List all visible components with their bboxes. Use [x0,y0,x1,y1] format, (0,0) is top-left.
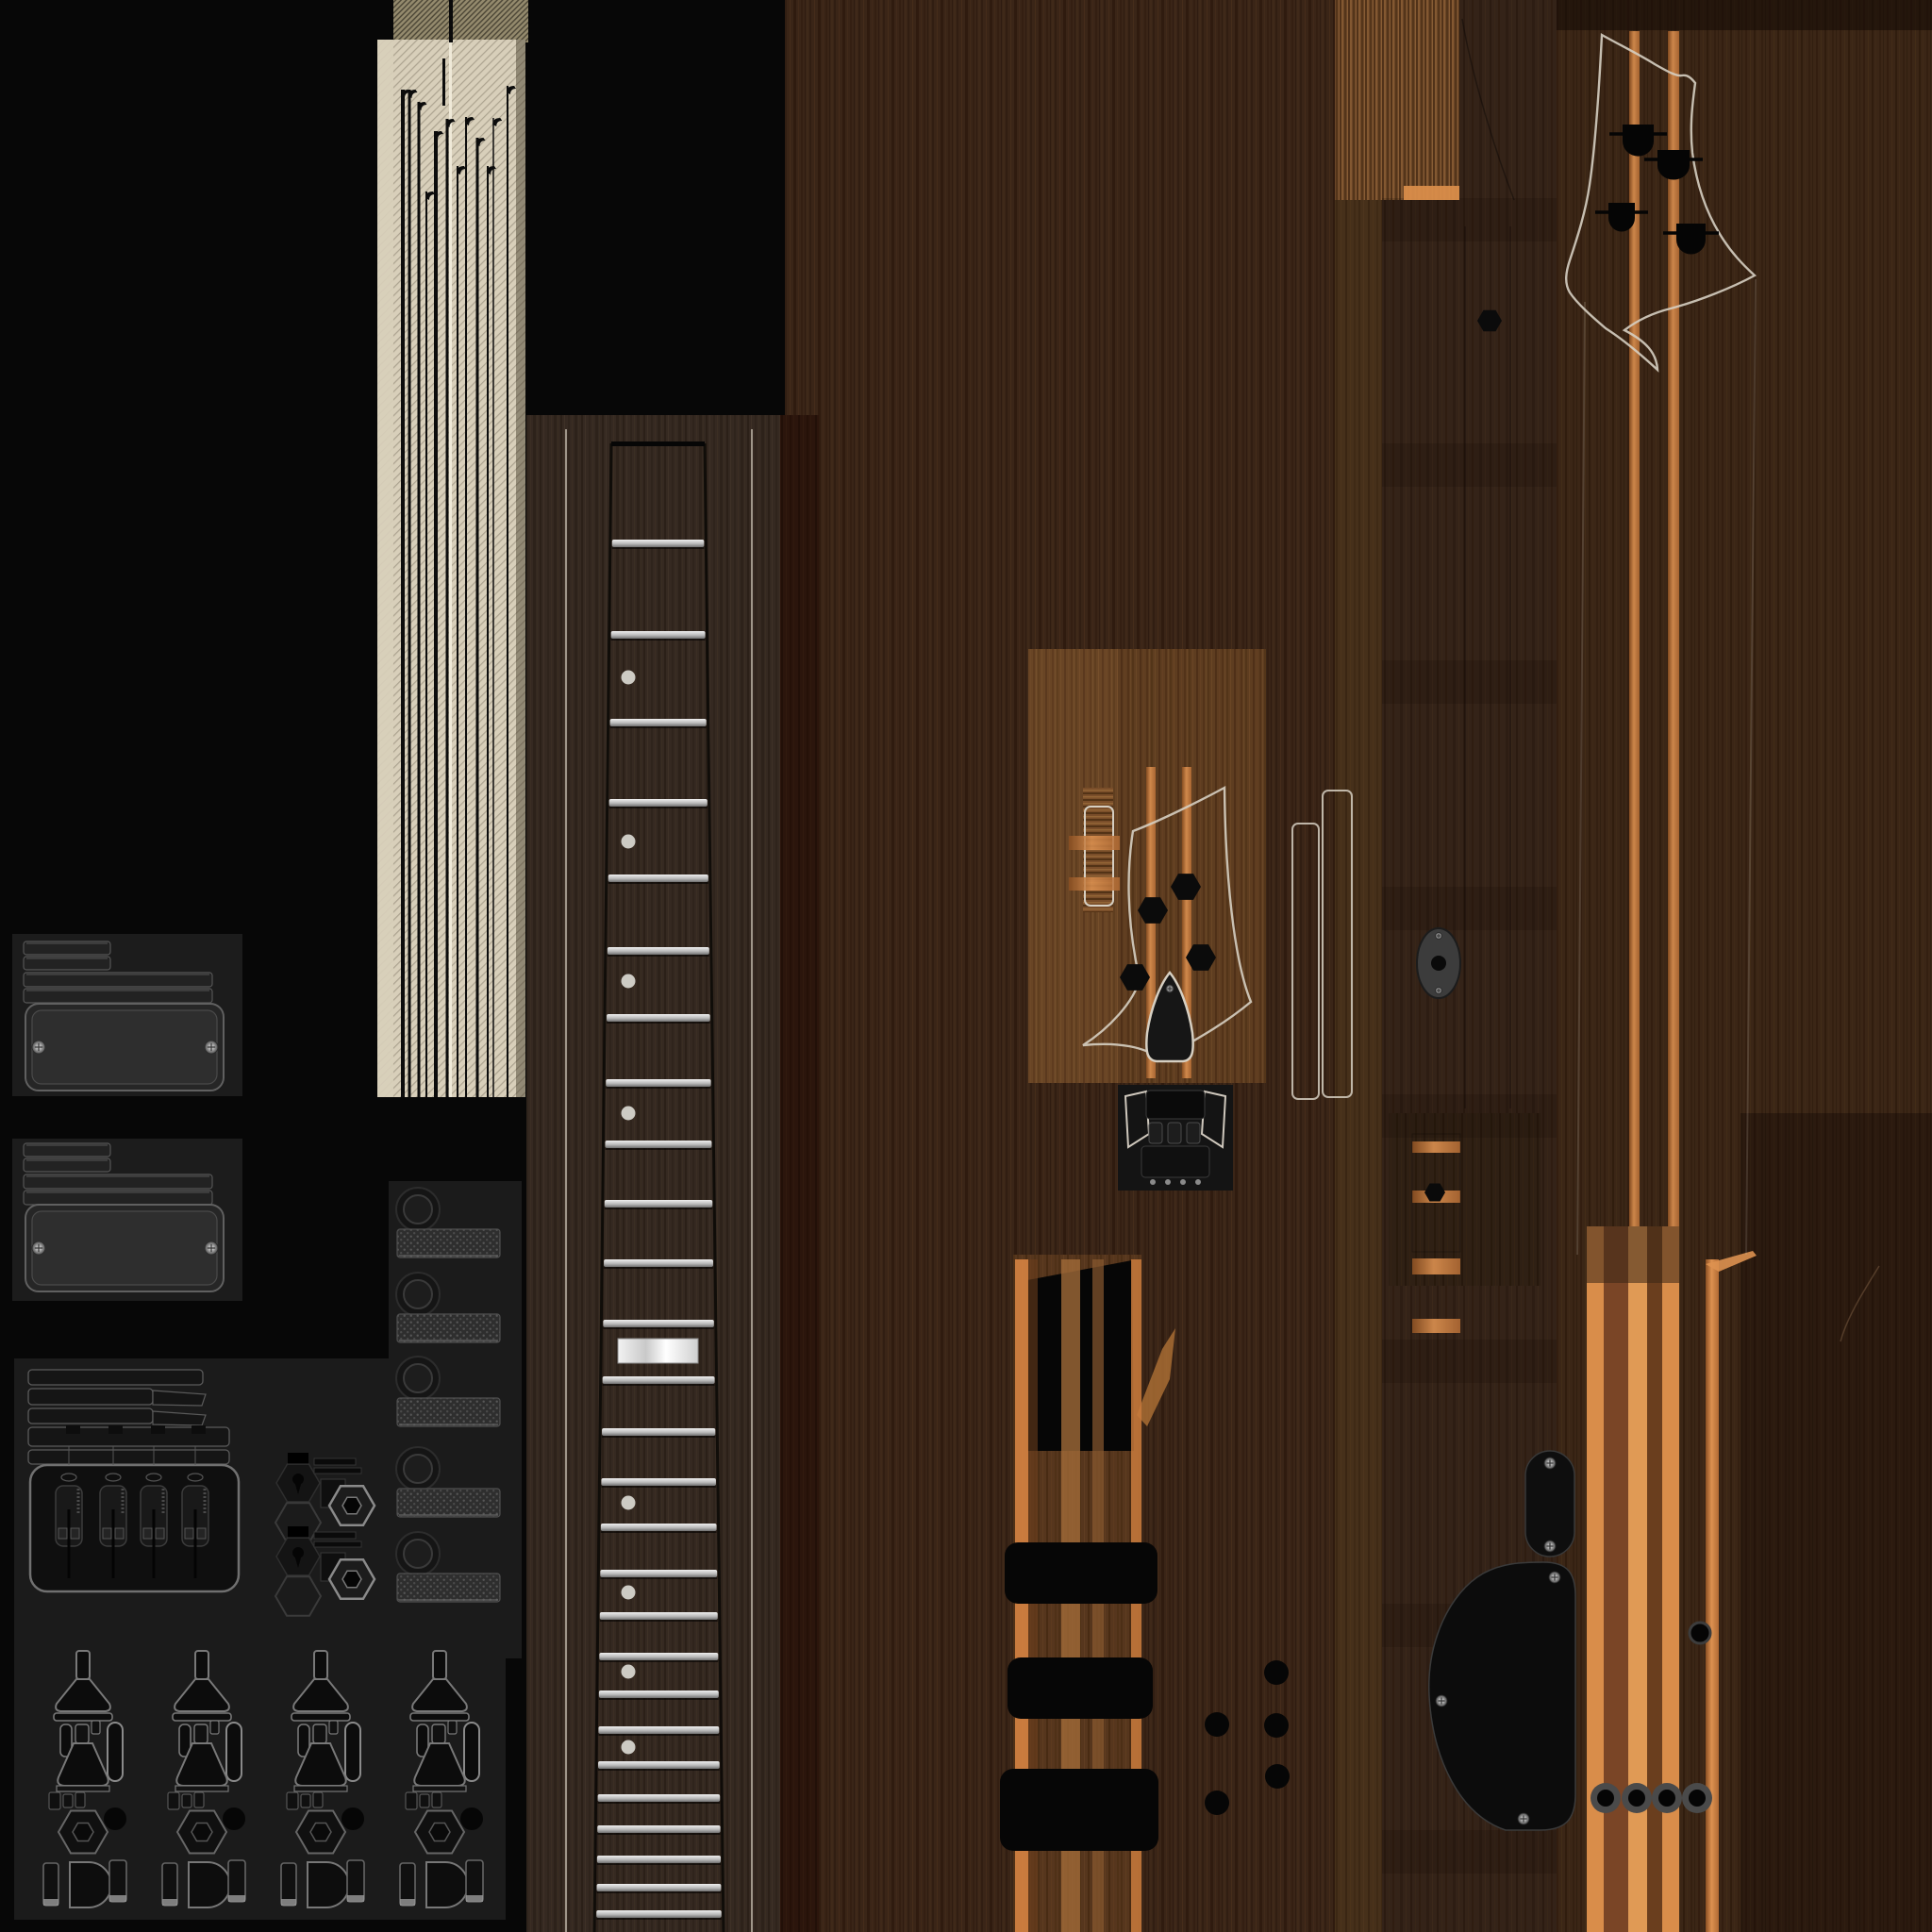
string-ferrule-hole [1628,1790,1645,1807]
binding-stripe-vertical [1706,1259,1719,1932]
lock-bar [314,1541,361,1547]
heel-laminate-stripe [1662,1226,1679,1932]
tuner-hole [1676,224,1706,255]
bridge-string [68,1509,71,1578]
wood-band [1382,443,1557,487]
guitar-texture-atlas [0,0,1932,1932]
fret-wire [607,1014,710,1022]
tuner-hole [1623,125,1654,157]
bridge-screw-dot [1165,1179,1171,1185]
strings-top-strip [393,0,528,42]
key-shaft-cap [281,1899,296,1906]
knob-hole-dot [1205,1790,1229,1815]
bridge-string [194,1509,197,1578]
fret-wire [608,947,709,955]
knob-hole-dot [1264,1660,1289,1685]
heel-laminate-stripe [1647,1226,1662,1932]
knob-top-ring [404,1195,432,1224]
fret-wire [598,1726,719,1734]
wood-panel-b-left [1335,0,1382,1932]
tuner-block [194,1724,208,1743]
fret-wire [606,1079,710,1087]
heel-stripe-band [1412,1258,1460,1274]
tuner-base-line [294,1786,347,1791]
wood-band [1382,1830,1557,1874]
wood-band [1382,660,1557,704]
strings-divider-line [449,40,452,1097]
fret-wire [603,1376,715,1384]
nut-orange-bar [1069,877,1120,891]
saddle-screw-block [143,1528,152,1539]
bar-notch [192,1425,206,1434]
heel-stripe-band [1412,1141,1460,1153]
saddle-screw-block [115,1528,124,1539]
strings-texture-panel [377,0,528,1097]
pickup-cover-black [1008,1657,1153,1719]
saddle-screw-block [197,1528,206,1539]
washer [182,1794,192,1807]
fretboard-side-strip [780,415,819,1932]
heel-laminate-stripe [1587,1226,1604,1932]
wood-band [1382,198,1557,241]
tuner-post [195,1651,208,1679]
key-shaft-cap [400,1899,415,1906]
fret-wire [604,1259,713,1267]
neck-heel-rect [1389,1113,1541,1286]
fretboard-inlay-dot [622,1665,636,1679]
key-shaft-cap [109,1895,126,1902]
wood-band [1382,1094,1557,1138]
washer [63,1794,73,1807]
bridge-saddle [1149,1123,1162,1143]
washer [49,1792,60,1809]
washer [194,1792,204,1807]
bridge-string [112,1509,115,1578]
string-line-short [442,58,445,106]
top-dark-band [1557,0,1932,30]
lock-bar [314,1468,361,1474]
wood-band [1382,1340,1557,1383]
pickup-cover-black [1000,1769,1158,1851]
fret-wire [606,1141,712,1148]
orange-edge-band [1404,186,1459,200]
string-line [457,166,458,1097]
pickup-face-inner [32,1010,217,1084]
bridge-profile-bar [28,1389,153,1405]
tuner-capsule [345,1723,360,1781]
tuner-pin [329,1721,338,1734]
tuner-capsule [226,1723,241,1781]
tuner-base-line [413,1786,466,1791]
tuner-collar [54,1713,112,1721]
saddle-screw-block [71,1528,79,1539]
bridge-saddle [1168,1123,1181,1143]
fretboard-inlay-dot [622,1107,636,1121]
lock-bar [314,1532,356,1539]
knob-hole-dot [1265,1764,1290,1789]
bar-notch [108,1425,123,1434]
string-line [487,166,489,1097]
fretboard-inlay-dot [622,671,636,685]
knob-knurl-bar [397,1574,500,1602]
panel-c-right-darken [1740,1113,1932,1932]
gear-housing-d [189,1862,230,1907]
tuner-capsule [464,1723,479,1781]
fret-wire [599,1653,718,1660]
fret-wire [600,1570,717,1577]
gear-housing-d [308,1862,349,1907]
tuner-collar [173,1713,231,1721]
string-line [408,90,411,1097]
tuner-post [76,1651,90,1679]
fretboard-inlay-dot [622,1586,636,1600]
strings-right-dark-band [516,40,525,1097]
bar-notch [66,1425,80,1434]
fret-wire [597,1825,720,1833]
bridge-profile-bar [28,1408,153,1424]
tuner-collar [291,1713,350,1721]
fret-wire [603,1320,713,1327]
string-line [434,131,438,1097]
knob-knurl-bar [397,1314,500,1342]
string-ferrule-hole [1658,1790,1675,1807]
gear-hex-hole [73,1824,93,1841]
black-mask-quad [1027,1260,1134,1451]
tuner-pin [92,1721,100,1734]
bridge-front-subpanel [1118,1085,1233,1191]
fretboard-inlay-dot [622,1496,636,1510]
fretboard-inlay-dot [622,1740,636,1755]
fret-wire [600,1612,718,1620]
strings-left-margin [377,40,393,1097]
gear-housing-d [426,1862,468,1907]
string-line [418,102,421,1097]
tuner-hole [1608,203,1635,231]
lock-bar [314,1458,356,1465]
knob-knurl-bar [397,1398,500,1426]
string-ferrule-hole [1689,1790,1706,1807]
tuner-collar [410,1713,469,1721]
fret-wire [612,540,705,547]
nut-line [611,441,705,446]
knob-top-ring [404,1455,432,1483]
bridge-profile-bar [28,1370,203,1385]
key-shaft-cap [43,1899,58,1906]
washer [287,1792,298,1809]
knob-hole-dot [1264,1713,1289,1738]
stripe-fade [1587,1226,1679,1283]
bridge-screw-dot [1195,1179,1201,1185]
gear-knob-hole [104,1807,126,1830]
fret-wire [601,1478,715,1486]
fret-wire [601,1524,717,1531]
tuner-block [432,1724,445,1743]
fret-wire [596,1910,722,1918]
hex-socket [342,1571,361,1587]
lock-cap [288,1453,308,1465]
bridge-center-block [1146,1091,1205,1119]
saddle-screw-block [58,1528,67,1539]
pickup-face-inner [32,1211,217,1285]
key-shaft-cap [347,1895,364,1902]
fret-wire [597,1884,722,1891]
string-ferrule-hole [1597,1790,1614,1807]
fret-wire [602,1428,715,1436]
fretboard-wood [526,415,780,1932]
tuner-pin [448,1721,457,1734]
lock-cap [288,1526,308,1539]
knob-top-ring [404,1540,432,1568]
saddle-screw-block [185,1528,193,1539]
knob-knurl-bar [397,1489,500,1517]
texture-atlas-canvas [0,0,1932,1932]
bar-notch [151,1425,165,1434]
tuner-base-line [57,1786,109,1791]
gear-knob-hole [460,1807,483,1830]
key-shaft-cap [466,1895,483,1902]
washer [313,1792,323,1807]
pickup-cover-black [1005,1542,1158,1604]
gear-hex-hole [310,1824,331,1841]
bridge-profile-bar [28,1450,229,1464]
tuner-post [433,1651,446,1679]
heel-stripe-band [1412,1319,1460,1333]
knob-hole-dot [1205,1712,1229,1737]
string-line [507,86,508,1097]
bridge-screw-dot [1180,1179,1186,1185]
string-line [425,192,427,1097]
washer [75,1792,85,1807]
fret-wire [605,1200,712,1207]
tuner-base-line [175,1786,228,1791]
string-line [492,118,494,1097]
string-line [465,117,467,1097]
key-shaft-cap [228,1895,245,1902]
fretboard-inlay-dot [622,974,636,989]
gear-knob-hole [223,1807,245,1830]
heel-laminate-stripe [1604,1226,1628,1932]
knob-knurl-bar [397,1229,500,1257]
fret-wire [608,874,708,882]
washer [432,1792,441,1807]
gear-hex-hole [192,1824,212,1841]
gear-knob-hole [341,1807,364,1830]
washer [168,1792,179,1809]
fret-wire [599,1690,719,1698]
heel-laminate-stripe [1628,1226,1647,1932]
hex-socket [342,1497,361,1513]
tuner-post [314,1651,327,1679]
knob-top-ring [404,1280,432,1308]
string-line [401,90,405,1097]
washer [301,1794,310,1807]
saddle-screw-block [156,1528,164,1539]
knob-top-ring [404,1364,432,1392]
single-ferrule [1690,1623,1710,1643]
fret-wire [597,1856,721,1863]
headstock-top-striped-rect [1335,0,1459,200]
gear-hex-hole [429,1824,450,1841]
fretboard-inlay-dot [622,835,636,849]
fret-wire [611,631,706,639]
bridge-saddle [1187,1123,1200,1143]
fret-wire [610,719,707,726]
string-line [446,119,449,1097]
tuner-pin [210,1721,219,1734]
gear-housing-d [70,1862,111,1907]
bridge-lower-block [1141,1146,1209,1177]
tuner-block [313,1724,326,1743]
washer [420,1794,429,1807]
saddle-screw-block [103,1528,111,1539]
tuner-block [75,1724,89,1743]
washer [406,1792,417,1809]
fret-wire [598,1794,721,1802]
strings-divider-top [449,0,453,42]
tuner-hole [1657,150,1690,180]
string-line [476,138,479,1097]
fret-wire [609,799,708,807]
wood-band [1382,887,1557,930]
key-shaft-cap [162,1899,177,1906]
bridge-string [153,1509,156,1578]
bridge-screw-dot [1150,1179,1156,1185]
fret-wire [598,1761,720,1769]
fretboard-block-inlay [618,1339,698,1363]
tuner-capsule [108,1723,123,1781]
nut-orange-bar [1069,836,1120,850]
jack-hole [1431,956,1446,971]
